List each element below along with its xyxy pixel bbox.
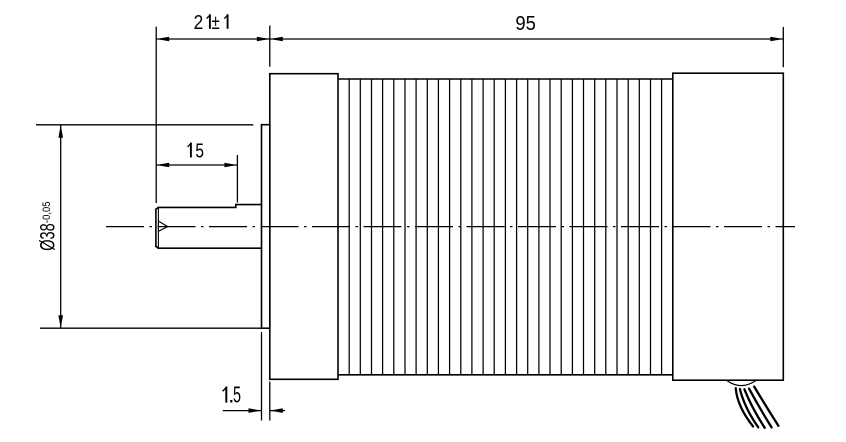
svg-text:95: 95 <box>515 12 536 35</box>
svg-text:5: 5 <box>233 382 241 408</box>
svg-text:±: ± <box>212 11 220 34</box>
svg-text:5: 5 <box>195 139 204 162</box>
svg-text:2: 2 <box>194 11 204 34</box>
svg-text:Ø38: Ø38 <box>36 223 59 251</box>
svg-text:-0,05: -0,05 <box>41 202 53 224</box>
